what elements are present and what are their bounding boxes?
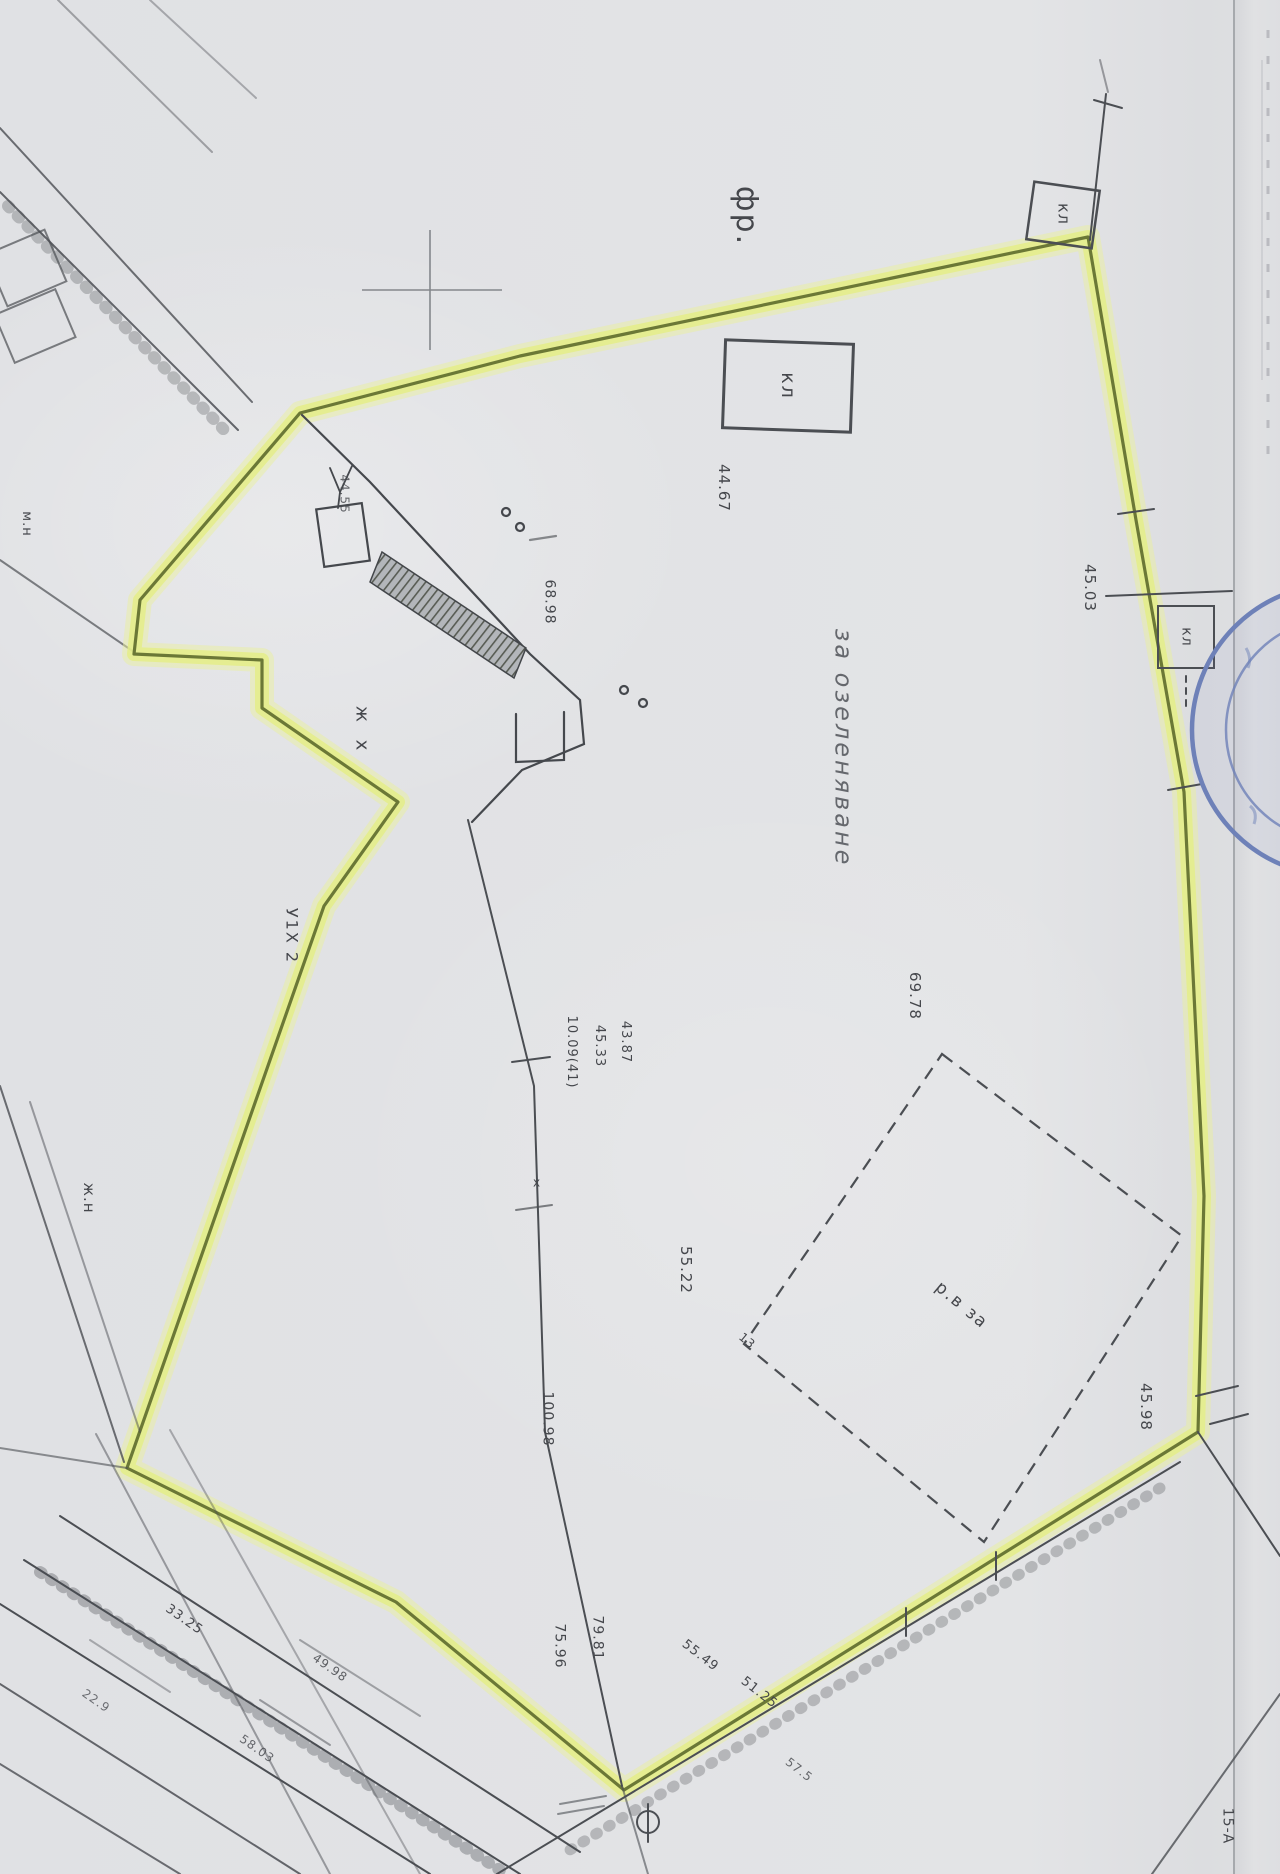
road-lines-bottom-right bbox=[497, 1462, 1280, 1874]
measurement-43-87: 43.87 bbox=[618, 1021, 632, 1063]
label-kl-right-box: кл bbox=[1179, 627, 1194, 646]
note-center: за озеленяване bbox=[830, 629, 855, 868]
measurement-100-98: 100.98 bbox=[540, 1392, 555, 1447]
measurement-44-67: 44.67 bbox=[715, 464, 731, 512]
interior-survey-line bbox=[468, 820, 648, 1874]
measurement-45-33: 45.33 bbox=[592, 1025, 606, 1067]
measurement-75-96: 75.96 bbox=[552, 1623, 567, 1668]
top-right-corner-marks bbox=[1026, 60, 1122, 248]
label-fr: фр. bbox=[730, 186, 762, 246]
registration-cross bbox=[362, 230, 502, 350]
hatched-building bbox=[370, 552, 526, 678]
measurement-79-81: 79.81 bbox=[590, 1615, 605, 1660]
measurement-68-98: 68.98 bbox=[542, 579, 557, 624]
label-kl-top-box: кл bbox=[777, 372, 797, 400]
survey-linework bbox=[0, 0, 1280, 1874]
label-upi: У1Х 2 bbox=[283, 908, 300, 964]
label-plot-15a: 15-А bbox=[1220, 1808, 1235, 1844]
label-zh-x: ж х bbox=[352, 706, 371, 757]
measurement-45-98: 45.98 bbox=[1137, 1383, 1153, 1431]
margin-marks bbox=[1262, 30, 1268, 470]
measurement-10-09: 10.09(41) bbox=[564, 1016, 578, 1089]
label-kl-top-right-box: кл bbox=[1055, 203, 1072, 225]
stamp bbox=[1192, 584, 1280, 876]
measurement-55-22: 55.22 bbox=[677, 1246, 693, 1294]
label-m-n: м.н bbox=[19, 511, 33, 536]
measurement-45-03: 45.03 bbox=[1081, 564, 1097, 612]
measurement-69-78: 69.78 bbox=[906, 972, 922, 1020]
label-x-mark: х bbox=[533, 1177, 541, 1190]
cadastral-map-scan: фр.клкл44.6768.9845.03клза озеленяванеж … bbox=[0, 0, 1280, 1874]
measurement-44-55: 44.55 bbox=[338, 474, 351, 513]
label-zh-n: ж.н bbox=[80, 1182, 96, 1213]
road-lines-top-left bbox=[0, 0, 256, 652]
